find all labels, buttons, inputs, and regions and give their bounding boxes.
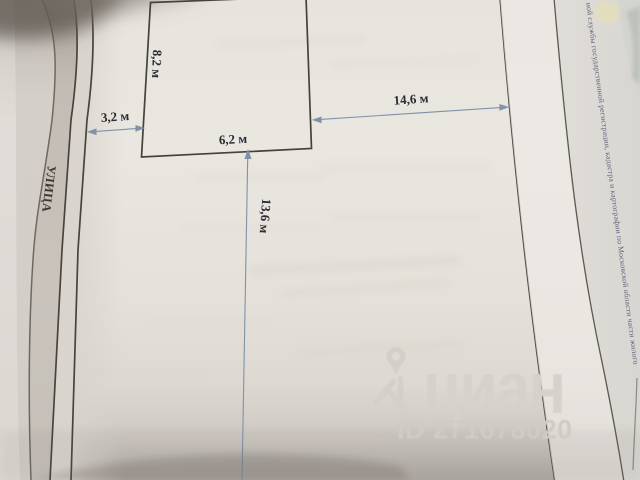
svg-text:14,6 м: 14,6 м [393,90,429,107]
svg-text:3,2 м: 3,2 м [100,108,129,125]
svg-text:8,2 м: 8,2 м [149,50,165,79]
svg-text:ID 271678020: ID 271678020 [397,415,573,445]
svg-text:6,2 м: 6,2 м [218,131,247,147]
svg-text:13,6 м: 13,6 м [257,198,274,234]
